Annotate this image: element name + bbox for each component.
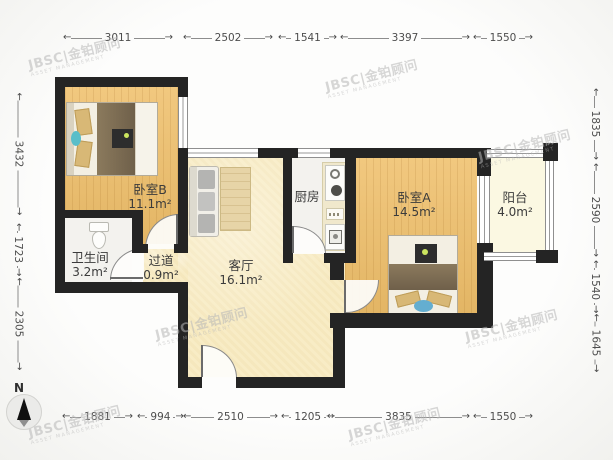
living-room-window [188, 148, 258, 158]
room-label-hallway: 过道 0.9m² [143, 254, 179, 282]
wall [283, 253, 293, 263]
room-name: 阳台 [497, 191, 533, 205]
bed-tablet [415, 244, 437, 263]
room-label-living: 客厅 16.1m² [219, 259, 262, 287]
balcony-window-right [545, 161, 554, 250]
sink [325, 224, 345, 250]
bedroom-a-bed [388, 235, 458, 317]
kitchen-window [298, 148, 330, 158]
wall [333, 325, 345, 388]
floorplan-page: { "plan": { "rooms": [ {"name": "卧室B", "… [0, 0, 613, 460]
room-label-bedroom-a: 卧室A 14.5m² [392, 191, 435, 219]
dim-bottom-3: 2510 [183, 410, 278, 424]
room-area: 4.0m² [497, 205, 533, 219]
north-label: N [14, 381, 24, 395]
entrance-door-leaf [201, 345, 203, 377]
dim-top-3: 1541 [278, 31, 337, 45]
dim-top-4: 3397 [340, 31, 470, 45]
bedroom-a-door-leaf [344, 280, 346, 313]
bed-duvet [135, 103, 157, 175]
compass-needle-icon [17, 398, 31, 420]
stove [325, 165, 345, 201]
bed-blanket [389, 264, 457, 290]
wall [178, 377, 202, 388]
wall [330, 258, 344, 280]
kitchen-door-leaf [292, 226, 294, 253]
dim-left-2: 1723 [11, 223, 25, 273]
compass-icon [6, 394, 42, 430]
hall-living-passage-floor [178, 248, 188, 282]
room-area: 11.1m² [128, 197, 171, 211]
dim-right-4: 1645 [589, 314, 603, 373]
counter-item [326, 208, 344, 220]
room-area: 14.5m² [392, 205, 435, 219]
room-label-bathroom: 卫生间 3.2m² [71, 251, 109, 279]
room-label-kitchen: 厨房 [294, 190, 319, 204]
bedroom-b-window [178, 97, 188, 148]
dim-bottom-4: 1205 [281, 410, 320, 424]
bed-cushion [414, 300, 433, 312]
room-name: 卫生间 [71, 251, 109, 265]
wall [258, 148, 298, 158]
dim-left-3: 2305 [12, 278, 26, 371]
wall [178, 148, 188, 248]
room-area: 0.9m² [143, 268, 179, 282]
floorplan-canvas: 卧室B 11.1m² 卫生间 3.2m² 过道 0.9m² 客厅 16.1m² … [0, 0, 613, 460]
wall [132, 244, 148, 253]
dim-bottom-2: 994 [137, 410, 175, 424]
bathroom-door-leaf [110, 277, 143, 279]
wall [283, 156, 292, 263]
dim-left-1: 3432 [12, 93, 26, 216]
room-name: 过道 [143, 254, 179, 268]
wall [58, 210, 143, 218]
wall [174, 244, 188, 253]
bed-cushion [71, 131, 81, 146]
rug [220, 167, 251, 231]
bedroom-a-window [479, 176, 490, 243]
room-label-bedroom-b: 卧室B 11.1m² [128, 183, 171, 211]
compass-tail-icon [19, 420, 29, 427]
dim-right-1: 1835 [588, 88, 602, 160]
room-name: 客厅 [219, 259, 262, 273]
dim-right-3: 1540 [588, 260, 602, 310]
wall [55, 77, 65, 293]
wall [330, 313, 493, 328]
wall [536, 250, 558, 263]
wall [345, 148, 356, 258]
dim-right-2: 2590 [588, 163, 602, 257]
wall [55, 77, 188, 87]
dim-bottom-6: 1550 [473, 410, 533, 424]
room-name: 卧室A [392, 191, 435, 205]
room-area: 16.1m² [219, 273, 262, 287]
watermark: JBSC|金铂顾问ASSET MANAGEMENT [324, 59, 421, 100]
room-area: 3.2m² [71, 265, 109, 279]
bedroom-b-bed [66, 102, 158, 176]
sofa [189, 166, 219, 237]
dim-top-2: 2502 [183, 31, 273, 45]
dim-top-5: 1550 [473, 31, 533, 45]
room-name: 卧室B [128, 183, 171, 197]
wall [236, 377, 345, 388]
room-label-balcony: 阳台 4.0m² [497, 191, 533, 219]
wall [55, 282, 188, 293]
room-name: 厨房 [294, 190, 319, 204]
balcony-window-bottom [484, 252, 536, 261]
bed-tablet [112, 129, 133, 148]
wall [178, 77, 188, 97]
